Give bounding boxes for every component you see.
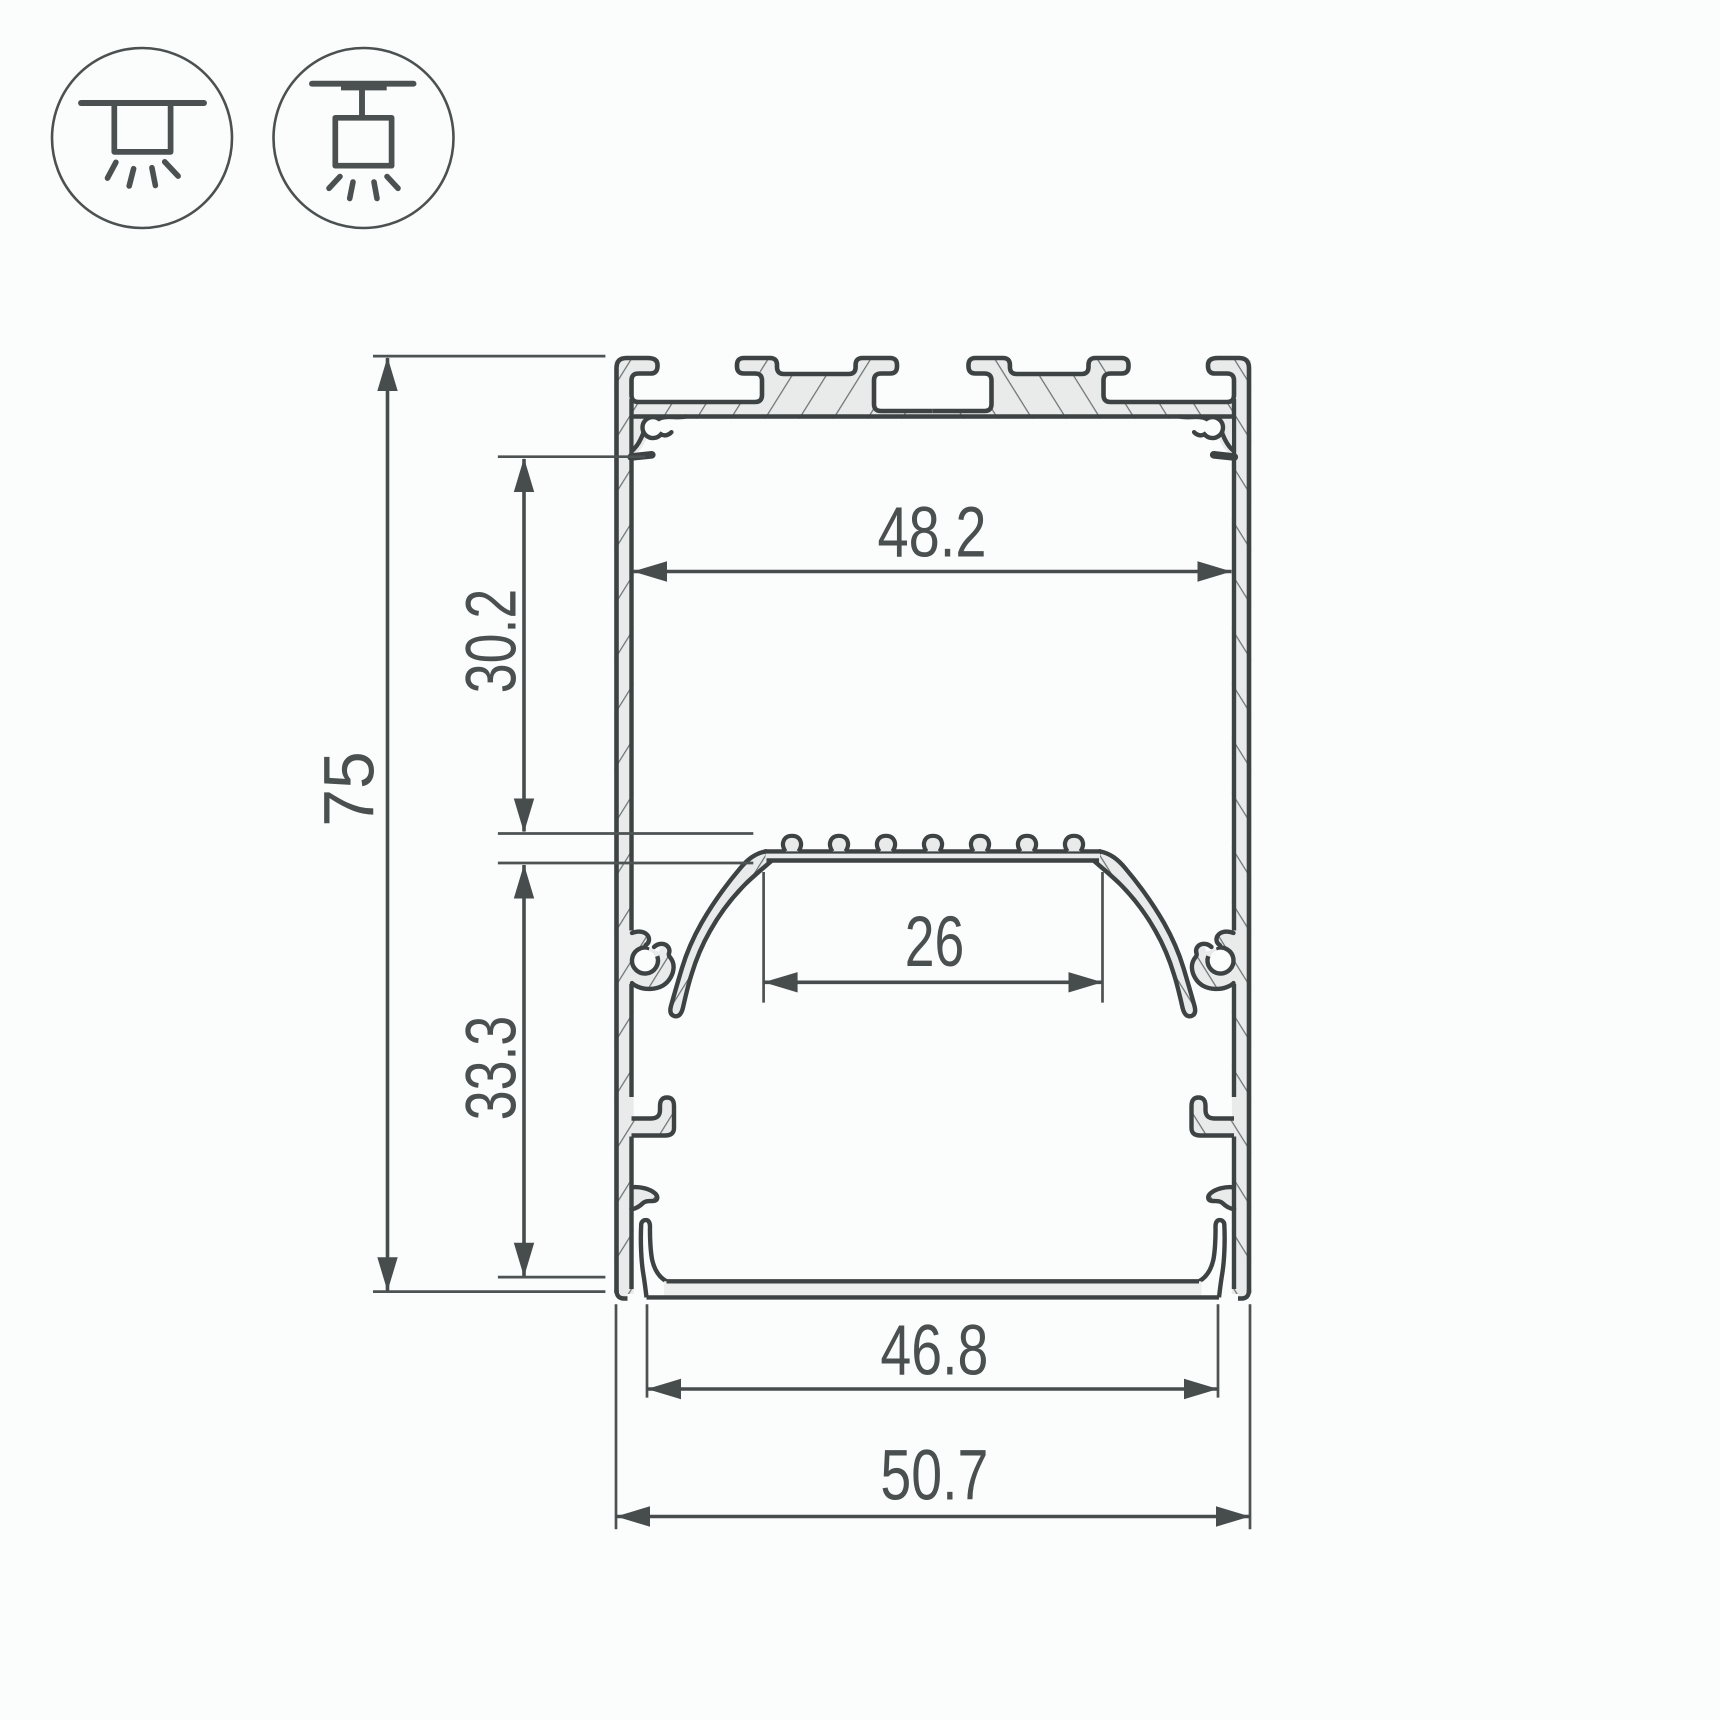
svg-text:75: 75 bbox=[310, 751, 390, 827]
svg-text:33.3: 33.3 bbox=[452, 1016, 532, 1121]
svg-text:30.2: 30.2 bbox=[452, 589, 532, 694]
svg-text:46.8: 46.8 bbox=[880, 1311, 988, 1391]
svg-text:48.2: 48.2 bbox=[878, 493, 987, 573]
svg-text:50.7: 50.7 bbox=[880, 1436, 988, 1516]
svg-text:26: 26 bbox=[905, 902, 965, 982]
